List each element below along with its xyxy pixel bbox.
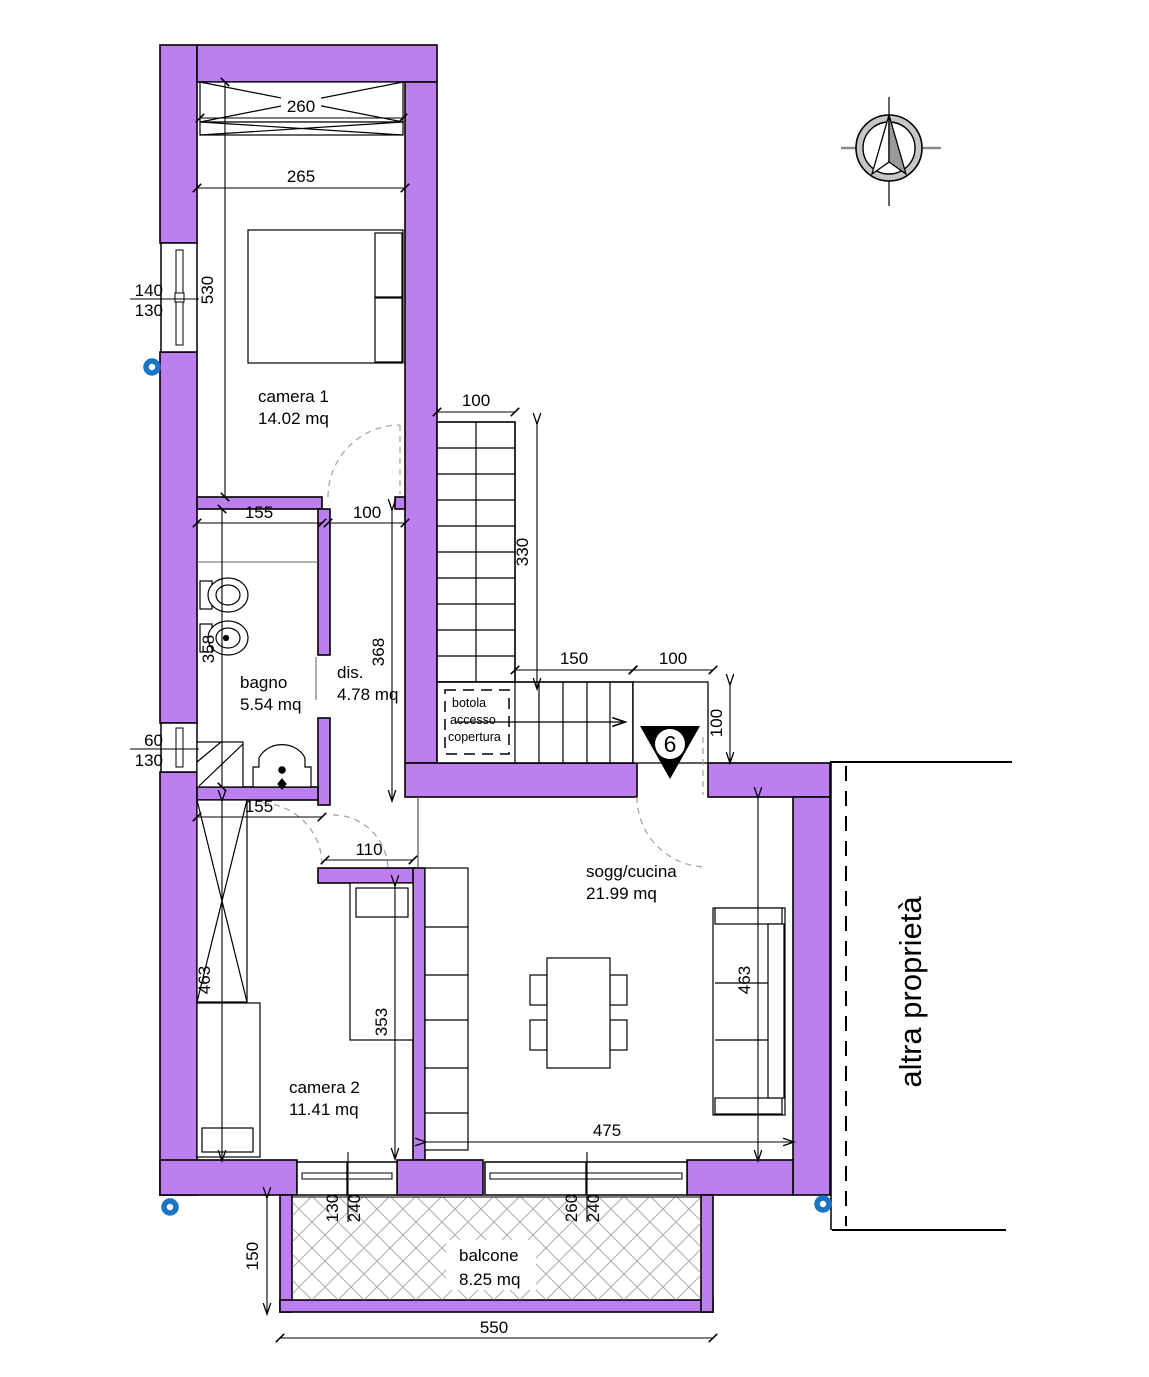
wall-bagno-east-lower xyxy=(318,718,330,805)
bed-single-left xyxy=(197,1003,260,1157)
window-camera1 xyxy=(161,243,197,352)
dis-area: 4.78 mq xyxy=(337,685,398,704)
wall-camera2-east xyxy=(413,868,425,1160)
dim-240b: 240 xyxy=(584,1194,603,1222)
balcone-area: 8.25 mq xyxy=(459,1270,520,1289)
door-arc-camera1 xyxy=(328,425,400,497)
furniture-camera1 xyxy=(200,82,403,363)
dim-130a: 130 xyxy=(135,301,163,320)
dim-140: 140 xyxy=(135,281,163,300)
kitchen-counter xyxy=(425,868,468,1150)
neighbour-property: altra proprietà xyxy=(830,762,1012,1230)
wall-left-upper xyxy=(160,45,197,243)
dim-463-camera2: 463 xyxy=(195,966,214,994)
dis-name: dis. xyxy=(337,663,363,682)
wall-balcony-bottom xyxy=(280,1300,713,1312)
dim-260: 260 xyxy=(287,97,315,116)
dim-60: 60 xyxy=(144,731,163,750)
dim-330: 330 xyxy=(513,538,532,566)
chair xyxy=(530,1020,547,1050)
wall-soggiorno-top-left xyxy=(405,763,637,797)
wall-bottom-pier xyxy=(397,1160,483,1195)
door-arc-entrance xyxy=(637,797,707,867)
altra-proprieta-label: altra proprietà xyxy=(893,896,928,1088)
dining-table xyxy=(530,958,627,1068)
balcone-name: balcone xyxy=(459,1246,519,1265)
furniture-soggiorno xyxy=(425,868,785,1150)
window-soggiorno-south xyxy=(485,1162,687,1195)
dim-475: 475 xyxy=(593,1121,621,1140)
dim-100-stair: 100 xyxy=(462,391,490,410)
camera1-area: 14.02 mq xyxy=(258,409,329,428)
chair xyxy=(610,1020,627,1050)
wall-left-lower xyxy=(160,772,197,1195)
dim-100-entrance: 100 xyxy=(659,649,687,668)
camera2-name: camera 2 xyxy=(289,1078,360,1097)
blue-ring-marker xyxy=(146,361,158,373)
dim-260-window: 260 xyxy=(562,1194,581,1222)
dim-240a: 240 xyxy=(345,1194,364,1222)
dim-155-camera1: 155 xyxy=(245,503,273,522)
soggiorno-name: sogg/cucina xyxy=(586,862,677,881)
wall-left-middle xyxy=(160,352,197,723)
wall-bottom-right xyxy=(687,1160,793,1195)
blue-ring-marker xyxy=(817,1198,829,1210)
dim-130b: 130 xyxy=(135,751,163,770)
soggiorno-area: 21.99 mq xyxy=(586,884,657,903)
wall-camera2-north xyxy=(318,868,418,883)
dim-353: 353 xyxy=(372,1008,391,1036)
dim-150-stair: 150 xyxy=(560,649,588,668)
toilet-icon xyxy=(200,578,248,612)
staircase: botola accesso copertura xyxy=(437,422,708,763)
bagno-area: 5.54 mq xyxy=(240,695,301,714)
sofa xyxy=(713,908,785,1115)
wall-bottom-left xyxy=(160,1160,297,1195)
dim-130-window: 130 xyxy=(323,1194,342,1222)
dim-265: 265 xyxy=(287,167,315,186)
botola-label-2: accesso xyxy=(450,713,496,727)
botola-label-1: botola xyxy=(452,696,486,710)
wall-balcony-right xyxy=(701,1195,713,1312)
dim-358: 358 xyxy=(199,635,218,663)
chair xyxy=(610,975,627,1005)
wall-soggiorno-top-right xyxy=(708,763,830,797)
dim-368: 368 xyxy=(369,638,388,666)
camera1-name: camera 1 xyxy=(258,387,329,406)
camera2-area: 11.41 mq xyxy=(289,1100,359,1119)
wall-right-upper-block xyxy=(405,82,437,763)
dim-110: 110 xyxy=(355,840,382,859)
compass-icon xyxy=(841,97,941,206)
blue-ring-marker xyxy=(164,1201,176,1213)
bed-double xyxy=(248,230,403,363)
bagno-name: bagno xyxy=(240,673,287,692)
window-bagno xyxy=(161,723,197,772)
dim-150-balcony: 150 xyxy=(243,1242,262,1270)
entrance-number: 6 xyxy=(664,731,677,757)
sink-icon xyxy=(253,745,311,789)
shower-icon xyxy=(197,742,243,787)
dim-550: 550 xyxy=(480,1318,508,1337)
dim-530: 530 xyxy=(198,276,217,304)
wall-bagno-east-upper xyxy=(318,509,330,655)
wall-camera1-door-stub xyxy=(395,497,405,509)
chair xyxy=(530,975,547,1005)
floor-plan-drawing: botola accesso copertura xyxy=(0,0,1149,1377)
window-camera2-south xyxy=(297,1162,397,1195)
wall-east xyxy=(793,797,830,1195)
wall-top xyxy=(197,45,437,82)
wall-balcony-left xyxy=(280,1195,292,1312)
botola-label-3: copertura xyxy=(448,730,501,744)
dim-155-bagno: 155 xyxy=(245,797,273,816)
floor-plan-page: botola accesso copertura xyxy=(0,0,1149,1377)
dim-100-door: 100 xyxy=(353,503,381,522)
dim-463-soggiorno: 463 xyxy=(735,966,754,994)
dim-100-landing: 100 xyxy=(707,709,726,737)
